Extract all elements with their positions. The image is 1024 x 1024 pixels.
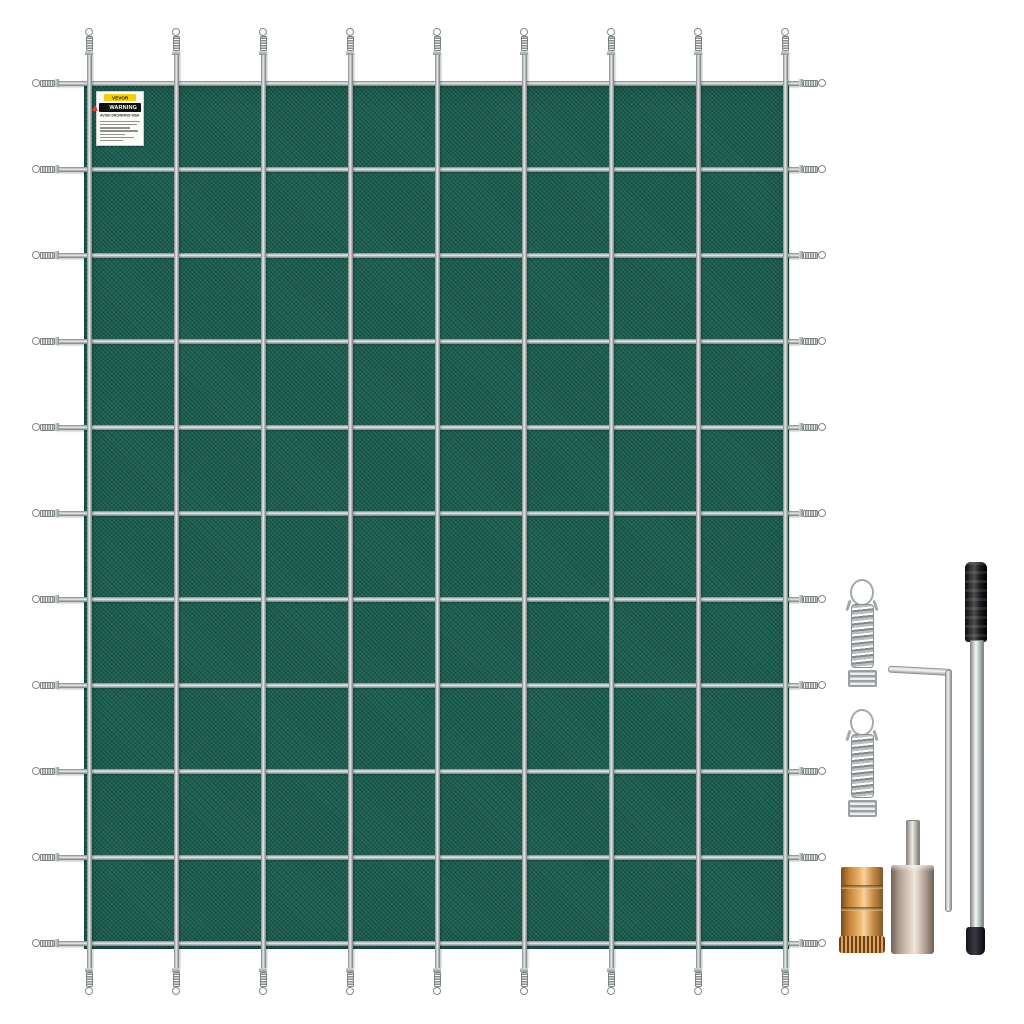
installation-rod-tip	[966, 927, 985, 955]
cover-spring-assembly	[843, 709, 881, 817]
spring-coil	[851, 734, 874, 798]
spring-coil	[851, 604, 874, 668]
product-photo-stage: VEVOR WARNING AVOID DROWNING RISK	[0, 0, 1024, 1024]
tamping-tool-body	[891, 865, 934, 954]
installation-rod-shaft	[970, 640, 984, 932]
brass-anchor	[841, 867, 883, 939]
spring-ring-icon	[850, 709, 874, 736]
hex-key-leg	[945, 670, 952, 912]
spring-buckle	[848, 670, 877, 687]
brass-anchor-knurl	[839, 936, 885, 953]
tamping-tool-pin	[906, 820, 920, 870]
spring-buckle	[848, 800, 877, 817]
cover-spring-assembly	[843, 579, 881, 687]
installation-rod-handle	[965, 562, 987, 642]
spring-ring-icon	[850, 579, 874, 606]
anchor-groove	[841, 885, 883, 889]
anchor-groove	[841, 907, 883, 911]
hardware-kit	[0, 0, 1024, 1024]
hex-key	[888, 666, 952, 676]
